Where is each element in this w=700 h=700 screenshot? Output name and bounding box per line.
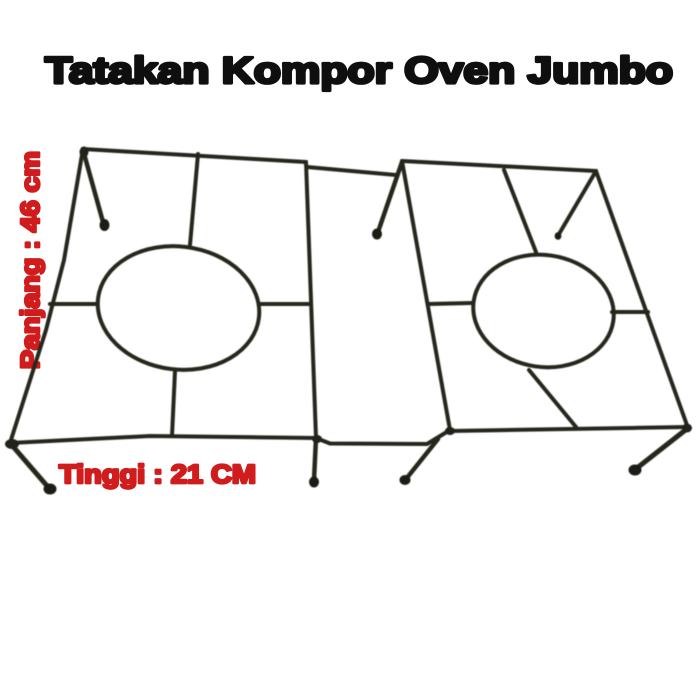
svg-text:Tinggi : 21 CM: Tinggi : 21 CM [59,459,256,489]
svg-text:Tatakan Kompor Oven Jumbo: Tatakan Kompor Oven Jumbo [45,50,673,91]
svg-text:Panjang : 46 cm: Panjang : 46 cm [15,151,45,369]
